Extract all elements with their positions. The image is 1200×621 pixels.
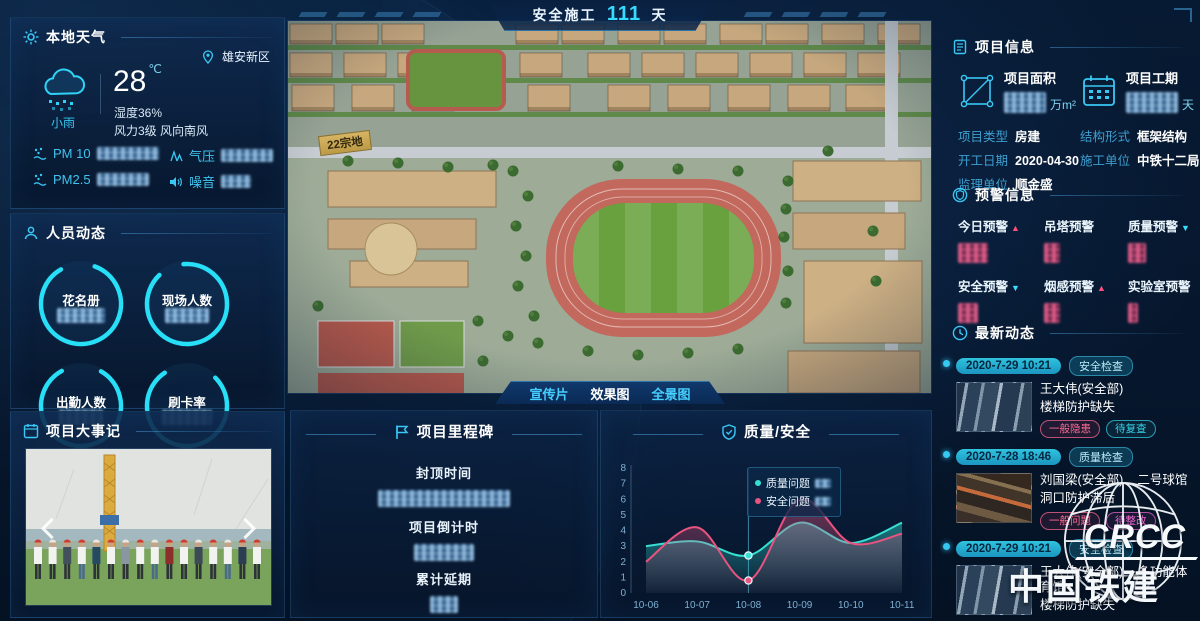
- district-label: 雄安新区: [202, 48, 270, 65]
- weather-condition: 小雨: [51, 114, 75, 131]
- svg-text:2: 2: [620, 557, 626, 568]
- alert-crane-value-redacted: [1044, 243, 1060, 263]
- field-project-type: 项目类型房建: [958, 126, 1040, 145]
- crcc-acronym: CRCC: [1084, 518, 1186, 557]
- quality-tooltip-value-redacted: [815, 479, 831, 488]
- calendar-note-icon: [23, 423, 39, 439]
- alert-quality-value-redacted: [1128, 243, 1146, 263]
- field-structure-form: 结构形式框架结构: [1080, 126, 1187, 145]
- panorama-button[interactable]: 全景图: [652, 384, 691, 403]
- topping-time-value-redacted: [378, 490, 510, 507]
- viewer-mode-bar: 宣传片 效果图 全景图: [495, 381, 725, 404]
- events-panel: 项目大事记: [10, 411, 285, 618]
- ring-roster: 花名册: [35, 258, 127, 350]
- project-area-value-redacted: [1004, 92, 1046, 113]
- topping-time-item: 封顶时间: [291, 463, 597, 507]
- alert-crane: 吊塔预警: [1044, 216, 1097, 263]
- news-thumbnail: [956, 382, 1032, 432]
- svg-text:10-08: 10-08: [736, 600, 762, 611]
- news-time: 2020-7-29 10:21: [956, 358, 1061, 374]
- event-photo: [25, 448, 272, 606]
- project-info-title: 项目信息: [975, 37, 1035, 57]
- pm25-value-redacted: [97, 173, 149, 186]
- countdown-value-redacted: [414, 544, 474, 561]
- quality-series-dot: [755, 480, 761, 486]
- pm25-metric: PM2.5: [33, 172, 149, 187]
- clock-icon: [952, 325, 968, 341]
- alert-today: 今日预警▲: [958, 216, 1020, 263]
- timeline-bullet: [943, 360, 950, 367]
- timeline-bullet: [943, 451, 950, 458]
- weather-panel: 本地天气 雄安新区 小雨 28℃ 湿度36% 风力3级 风向南风 PM 10: [10, 17, 285, 209]
- alerts-panel: 预警信息 今日预警▲ 吊塔预警 质量预警▼ 安全预警▼ 烟感预警▲ 实验室预警: [940, 176, 1195, 309]
- header-decor-left: [299, 12, 452, 17]
- pressure-icon: [169, 149, 183, 163]
- header-decor-right: [744, 12, 897, 17]
- pm10-value-redacted: [97, 147, 159, 160]
- news-tag: 待复查: [1106, 420, 1156, 438]
- crcc-logo: CRCC 中国铁建: [1008, 466, 1200, 618]
- milestone-panel: 项目里程碑 封顶时间 项目倒计时 累计延期: [290, 410, 598, 618]
- calendar-icon: [1080, 72, 1118, 110]
- safety-series-dot: [755, 498, 761, 504]
- alert-quality: 质量预警▼: [1128, 216, 1190, 263]
- news-entry[interactable]: 2020-7-29 10:21 安全检查 王大伟(安全部) 楼梯防护缺失 一般隐…: [956, 356, 1195, 438]
- personnel-panel: 人员动态 花名册 现场人数 出勤人数 刷卡率: [10, 213, 285, 409]
- project-duration-stat: 项目工期 天: [1080, 68, 1194, 113]
- corner-bracket: [1174, 8, 1192, 22]
- shield-check-icon: [721, 424, 737, 440]
- project-duration-value-redacted: [1126, 92, 1178, 113]
- wind-label: 风力3级 风向南风: [114, 122, 208, 139]
- events-panel-title: 项目大事记: [46, 421, 121, 441]
- svg-text:5: 5: [620, 510, 626, 521]
- chart-tooltip: 质量问题 安全问题: [747, 467, 841, 517]
- svg-text:8: 8: [620, 463, 626, 474]
- humidity-label: 湿度36%: [114, 104, 162, 121]
- pm10-metric: PM 10: [33, 146, 159, 161]
- personnel-panel-title: 人员动态: [46, 223, 106, 243]
- field-contractor: 施工单位中铁十二局: [1080, 150, 1200, 169]
- countdown-item: 项目倒计时: [291, 517, 597, 561]
- svg-text:1: 1: [620, 572, 626, 583]
- pm10-icon: [33, 147, 47, 161]
- noise-metric: 噪音: [169, 172, 251, 191]
- project-area-stat: 项目面积 万m²: [958, 68, 1076, 113]
- pressure-metric: 气压: [169, 146, 273, 165]
- news-time: 2020-7-28 18:46: [956, 449, 1061, 465]
- safety-tooltip-value-redacted: [815, 497, 831, 506]
- promo-video-button[interactable]: 宣传片: [529, 384, 568, 403]
- svg-text:10-10: 10-10: [838, 600, 864, 611]
- location-pin-icon: [202, 50, 218, 64]
- project-info-panel: 项目信息 项目面积 万m² 项目工期 天 项目类型房建 结构形式框架结构 开工日…: [940, 28, 1195, 172]
- noise-value-redacted: [221, 175, 251, 188]
- delay-item: 累计延期: [291, 569, 597, 613]
- onsite-value-redacted: [165, 308, 209, 323]
- svg-text:7: 7: [620, 479, 626, 490]
- render-view-button[interactable]: 效果图: [590, 384, 629, 403]
- flag-icon: [394, 424, 410, 440]
- svg-text:10-09: 10-09: [787, 600, 813, 611]
- milestone-panel-title: 项目里程碑: [417, 421, 495, 442]
- svg-text:6: 6: [620, 494, 626, 505]
- roster-value-redacted: [57, 308, 105, 323]
- news-tag: 一般隐患: [1040, 420, 1100, 438]
- field-start-date: 开工日期2020-04-30: [958, 150, 1079, 169]
- delay-value-redacted: [430, 596, 458, 613]
- weather-panel-title: 本地天气: [46, 27, 106, 47]
- aerial-render: [288, 21, 931, 393]
- news-category: 安全检查: [1069, 356, 1133, 376]
- svg-text:10-07: 10-07: [684, 600, 710, 611]
- svg-text:3: 3: [620, 541, 626, 552]
- temperature-unit: ℃: [148, 62, 161, 76]
- ring-onsite: 现场人数: [141, 258, 233, 350]
- svg-text:10-11: 10-11: [890, 600, 915, 611]
- person-icon: [23, 225, 39, 241]
- document-icon: [952, 39, 968, 55]
- chart-title: 质量/安全: [744, 421, 811, 442]
- news-category: 质量检查: [1069, 447, 1133, 467]
- sun-icon: [23, 29, 39, 45]
- alert-today-value-redacted: [958, 243, 988, 263]
- pm25-icon: [33, 173, 47, 187]
- cloud-rain-icon: [37, 68, 91, 117]
- dashboard-root: 22宗地 安全施工 111 天 本地天气 雄安新区: [0, 0, 1200, 621]
- news-panel-title: 最新动态: [975, 323, 1035, 343]
- temperature-value: 28℃: [113, 62, 162, 99]
- svg-text:4: 4: [620, 526, 626, 537]
- alerts-panel-title: 预警信息: [975, 185, 1035, 205]
- area-icon: [958, 72, 996, 110]
- svg-text:10-06: 10-06: [633, 600, 659, 611]
- crcc-brand-text: 中国铁建: [1008, 558, 1200, 610]
- timeline-bullet: [943, 543, 950, 550]
- svg-text:0: 0: [620, 588, 626, 599]
- shield-alert-icon: [952, 187, 968, 203]
- project-3d-view[interactable]: 22宗地: [287, 20, 932, 394]
- quality-safety-panel: 质量/安全 01234567810-0610-0710-0810-0910-10…: [600, 410, 932, 618]
- noise-icon: [169, 175, 183, 189]
- pressure-value-redacted: [221, 149, 273, 162]
